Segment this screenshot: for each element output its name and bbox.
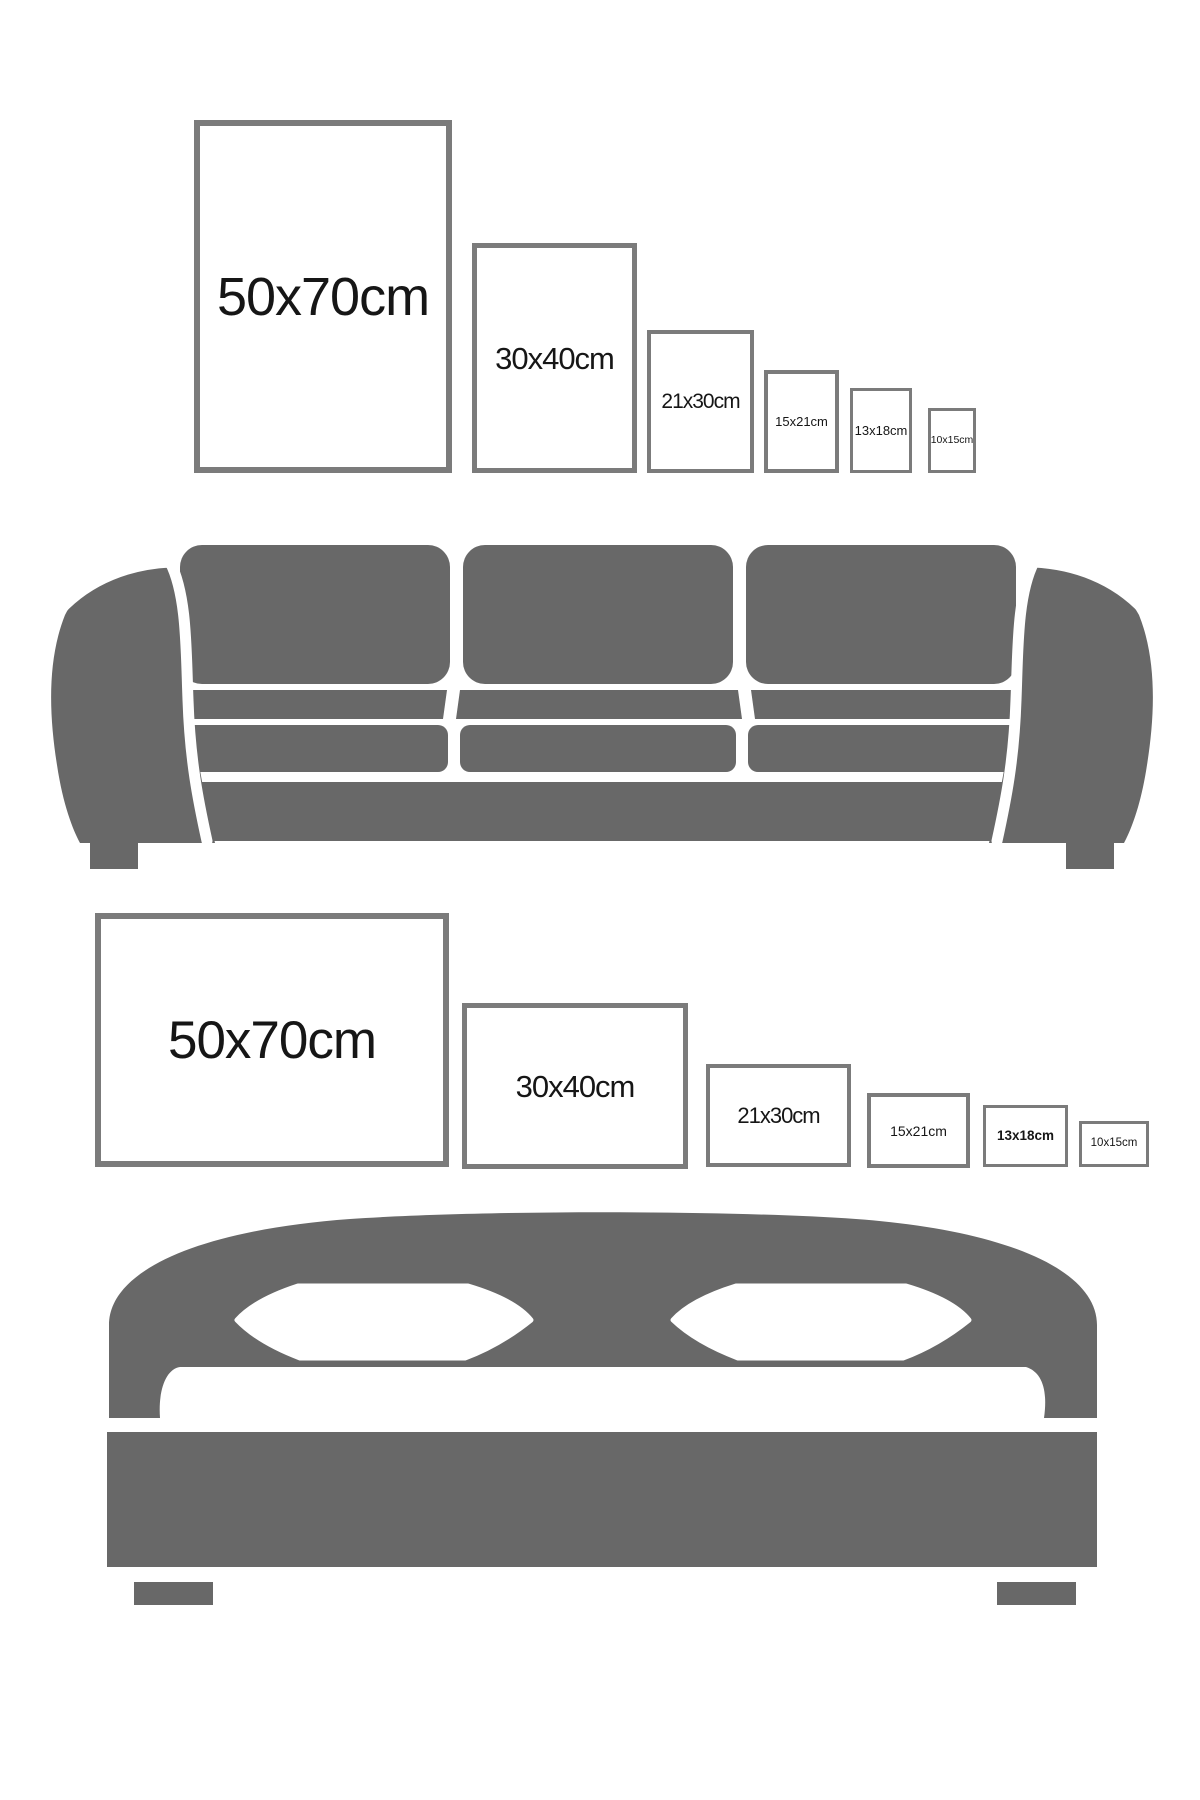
bed-leg-right (997, 1582, 1076, 1605)
sofa-leg-right (1066, 841, 1114, 869)
frame-sofa-30x40: 30x40cm (472, 243, 637, 473)
frame-size-label: 10x15cm (1091, 1138, 1138, 1150)
sofa-deck-mid (456, 690, 742, 719)
frame-sofa-21x30: 21x30cm (647, 330, 754, 473)
bed-pillow-left (237, 1286, 531, 1358)
frame-sofa-15x21: 15x21cm (764, 370, 839, 473)
sofa-back-cushion (746, 545, 1016, 684)
frame-size-label: 30x40cm (495, 343, 614, 374)
sofa-back-cushion (180, 545, 450, 684)
frame-size-label: 21x30cm (661, 391, 739, 412)
frame-size-label: 50x70cm (217, 270, 429, 324)
frame-bed-21x30: 21x30cm (706, 1064, 851, 1167)
sofa-back-cushion (463, 545, 733, 684)
frame-bed-15x21: 15x21cm (867, 1093, 970, 1168)
sofa-leg-left (90, 841, 138, 869)
frame-bed-10x15: 10x15cm (1079, 1121, 1149, 1167)
frame-bed-30x40: 30x40cm (462, 1003, 688, 1169)
frame-size-label: 50x70cm (168, 1014, 376, 1067)
sofa-illustration (35, 500, 1165, 880)
frame-bed-13x18: 13x18cm (983, 1105, 1068, 1167)
frame-size-label: 15x21cm (890, 1124, 947, 1138)
size-guide-infographic: 50x70cm 30x40cm 21x30cm 15x21cm 13x18cm … (0, 0, 1200, 1800)
frame-size-label: 13x18cm (855, 424, 908, 437)
frame-size-label: 30x40cm (516, 1071, 635, 1102)
sofa-base (114, 782, 1090, 841)
bed-illustration (100, 1200, 1110, 1610)
frame-size-label: 15x21cm (775, 415, 828, 428)
sofa-seat-cushion (460, 725, 736, 772)
bed-base (107, 1432, 1097, 1567)
frame-sofa-13x18: 13x18cm (850, 388, 912, 473)
frame-size-label: 21x30cm (737, 1105, 819, 1127)
bed-leg-left (134, 1582, 213, 1605)
frame-size-label: 13x18cm (997, 1129, 1054, 1143)
frame-sofa-50x70: 50x70cm (194, 120, 452, 473)
bed-pillow-right (673, 1286, 969, 1358)
frame-bed-50x70: 50x70cm (95, 913, 449, 1167)
frame-sofa-10x15: 10x15cm (928, 408, 976, 473)
frame-size-label: 10x15cm (931, 435, 974, 446)
